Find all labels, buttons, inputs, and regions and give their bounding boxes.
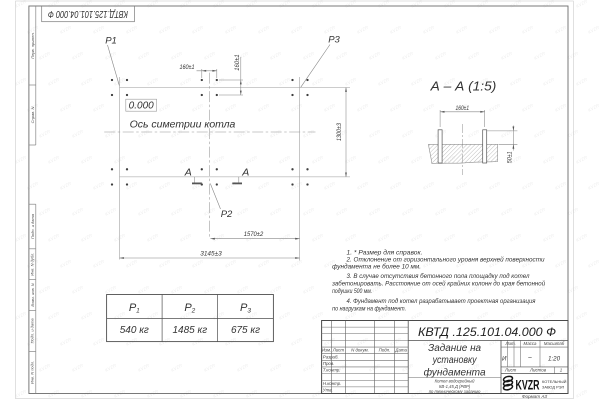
svg-text:KVZR: KVZR	[59, 258, 73, 268]
svg-text:А – А (1:5): А – А (1:5)	[430, 79, 497, 94]
svg-text:KVZR: KVZR	[191, 258, 205, 268]
svg-text:Т.контр.: Т.контр.	[323, 368, 341, 373]
svg-text:KVZR: KVZR	[575, 310, 589, 320]
svg-text:3. В случае отсутствия бет: 3. В случае отсутствия бетонного пола пл…	[347, 273, 531, 280]
svg-text:KVZR: KVZR	[302, 50, 316, 60]
svg-text:KVZR: KVZR	[170, 50, 184, 60]
svg-text:KVZR: KVZR	[302, 284, 316, 294]
svg-text:KVZR: KVZR	[476, 232, 490, 242]
svg-text:KVZR: KVZR	[38, 284, 52, 294]
svg-text:KVZR: KVZR	[377, 232, 391, 242]
svg-text:KVZR: KVZR	[92, 24, 106, 34]
svg-text:KVZR: KVZR	[575, 0, 589, 9]
svg-text:KVZR: KVZR	[191, 102, 205, 112]
svg-text:KVZR: KVZR	[38, 362, 52, 372]
svg-text:KVZR: KVZR	[212, 76, 226, 86]
svg-text:KVZR: KVZR	[14, 0, 28, 9]
svg-text:Инв. N подл.: Инв. N подл.	[30, 361, 35, 384]
svg-text:Перв. примен.: Перв. примен.	[30, 32, 35, 59]
svg-text:KVZR: KVZR	[401, 50, 415, 60]
svg-text:Листов: Листов	[529, 368, 547, 373]
svg-text:KVZR: KVZR	[311, 0, 325, 9]
svg-text:Справ. N: Справ. N	[30, 107, 35, 124]
svg-text:KVZR: KVZR	[290, 336, 304, 346]
svg-text:KVZR: KVZR	[368, 50, 382, 60]
svg-text:KVZR: KVZR	[587, 258, 600, 268]
svg-text:KVZR: KVZR	[278, 0, 292, 9]
svg-text:KVZR: KVZR	[533, 50, 547, 60]
svg-text:675 кг: 675 кг	[231, 325, 260, 336]
svg-text:KVZR: KVZR	[533, 128, 547, 138]
svg-text:KVZR: KVZR	[401, 206, 415, 216]
svg-text:KVZR: KVZR	[158, 24, 172, 34]
svg-text:KVZR: KVZR	[113, 0, 127, 9]
svg-text:KVZR: KVZR	[257, 258, 271, 268]
svg-text:KVZR: KVZR	[422, 24, 436, 34]
svg-text:KVZR: KVZR	[104, 50, 118, 60]
svg-text:KVZR: KVZR	[92, 258, 106, 268]
svg-text:KVZR: KVZR	[377, 76, 391, 86]
svg-text:KVZR: KVZR	[104, 206, 118, 216]
svg-text:KVZR: KVZR	[26, 180, 40, 190]
svg-text:KVZR: KVZR	[377, 0, 391, 9]
svg-text:KVZR: KVZR	[542, 232, 556, 242]
svg-text:КВТД .125.101.04.000 Ф: КВТД .125.101.04.000 Ф	[418, 325, 556, 339]
svg-text:0.000: 0.000	[129, 101, 154, 112]
svg-text:KVZR: KVZR	[47, 76, 61, 86]
svg-text:KVZR: KVZR	[476, 0, 490, 9]
svg-text:P1: P1	[105, 36, 117, 47]
svg-text:KVZR: KVZR	[146, 154, 160, 164]
svg-text:KVZR: KVZR	[509, 76, 523, 86]
svg-text:160±1: 160±1	[456, 105, 470, 112]
svg-text:KVZR: KVZR	[59, 102, 73, 112]
svg-text:KVZR: KVZR	[509, 232, 523, 242]
svg-text:KVZR: KVZR	[125, 180, 139, 190]
svg-text:KVZR: KVZR	[47, 0, 61, 9]
svg-text:KVZR: KVZR	[377, 154, 391, 164]
svg-text:KVZR: KVZR	[203, 362, 217, 372]
svg-text:KVZR: KVZR	[38, 128, 52, 138]
svg-text:KVZR: KVZR	[311, 232, 325, 242]
svg-text:KVZR: KVZR	[158, 180, 172, 190]
svg-text:KVZR: KVZR	[521, 102, 535, 112]
svg-text:KVZR: KVZR	[146, 310, 160, 320]
svg-text:–: –	[527, 355, 532, 362]
svg-text:KVZR: KVZR	[554, 180, 568, 190]
svg-text:KVZR: KVZR	[278, 154, 292, 164]
svg-text:Подп. и дата: Подп. и дата	[30, 213, 35, 239]
svg-text:KVZR: KVZR	[59, 336, 73, 346]
svg-text:KVZR: KVZR	[389, 336, 403, 346]
svg-text:KVZR: KVZR	[14, 76, 28, 86]
svg-text:KVZR: KVZR	[542, 0, 556, 9]
svg-text:KVZR: KVZR	[236, 362, 250, 372]
svg-text:Взам. инв. N: Взам. инв. N	[30, 283, 35, 306]
svg-text:KVZR: KVZR	[500, 50, 514, 60]
svg-text:KVZR: KVZR	[488, 24, 502, 34]
svg-text:KVZR: KVZR	[104, 128, 118, 138]
svg-text:Утв.: Утв.	[323, 388, 333, 393]
svg-text:KVZR: KVZR	[575, 232, 589, 242]
svg-text:4. Фундамент под котел раз: 4. Фундамент под котел разрабатывает про…	[347, 298, 537, 305]
svg-text:1300±3: 1300±3	[336, 123, 343, 141]
svg-text:ЗАВОД РЭП: ЗАВОД РЭП	[542, 384, 564, 389]
svg-text:KVZR: KVZR	[335, 206, 349, 216]
svg-text:по техническому заданию: по техническому заданию	[429, 389, 482, 394]
svg-text:KVZR: KVZR	[14, 310, 28, 320]
svg-text:KVZR: KVZR	[488, 102, 502, 112]
svg-text:KVZR: KVZR	[137, 206, 151, 216]
svg-text:KVZR: KVZR	[137, 50, 151, 60]
svg-text:KVZR: KVZR	[245, 154, 259, 164]
svg-text:P1: P1	[129, 302, 140, 315]
svg-text:KVZR: KVZR	[434, 206, 448, 216]
svg-text:KVZR: KVZR	[368, 206, 382, 216]
svg-text:KVZR: KVZR	[488, 180, 502, 190]
svg-text:KVZR: KVZR	[323, 102, 337, 112]
svg-text:KVZR: KVZR	[257, 102, 271, 112]
svg-text:KVZR: KVZR	[71, 362, 85, 372]
svg-text:Изм.: Изм.	[322, 348, 331, 353]
svg-text:подушки 500 мм.: подушки 500 мм.	[332, 288, 372, 295]
svg-text:KVZR: KVZR	[467, 128, 481, 138]
svg-text:Дата: Дата	[394, 348, 407, 353]
svg-text:KVZR: KVZR	[47, 310, 61, 320]
svg-text:KVZR: KVZR	[92, 336, 106, 346]
svg-text:KVZR: KVZR	[113, 232, 127, 242]
svg-text:забетонировать. Расстояние о: забетонировать. Расстояние от осей крайн…	[331, 280, 546, 287]
svg-text:KVZR: KVZR	[455, 180, 469, 190]
svg-text:KVZR: KVZR	[290, 180, 304, 190]
svg-text:KVZR: KVZR	[170, 206, 184, 216]
svg-text:160±1: 160±1	[234, 54, 241, 71]
svg-text:KVZR: KVZR	[542, 76, 556, 86]
svg-text:1485 кг: 1485 кг	[172, 325, 207, 336]
svg-text:KVZR: KVZR	[410, 76, 424, 86]
svg-text:KVZR: KVZR	[191, 180, 205, 190]
svg-text:KVZR: KVZR	[257, 24, 271, 34]
svg-text:KVZR: KVZR	[269, 362, 283, 372]
svg-text:Задание на: Задание на	[428, 343, 481, 354]
svg-text:KVZR: KVZR	[278, 232, 292, 242]
svg-text:KVZR: KVZR	[368, 362, 382, 372]
svg-text:KVZR: KVZR	[554, 258, 568, 268]
svg-text:KVZR: KVZR	[92, 102, 106, 112]
svg-text:KVZR: KVZR	[587, 24, 600, 34]
svg-text:KVZR: KVZR	[389, 102, 403, 112]
svg-text:P2: P2	[221, 209, 233, 220]
svg-text:KVZR: KVZR	[422, 102, 436, 112]
svg-text:KVZR: KVZR	[344, 76, 358, 86]
svg-text:Инв. N дубл.: Инв. N дубл.	[30, 253, 35, 276]
svg-text:KVZR: KVZR	[236, 284, 250, 294]
svg-text:KVZR: KVZR	[14, 154, 28, 164]
svg-text:KVZR: KVZR	[554, 102, 568, 112]
svg-text:KVZR: KVZR	[146, 0, 160, 9]
svg-text:KVZR: KVZR	[323, 336, 337, 346]
svg-text:KVZR: KVZR	[104, 284, 118, 294]
svg-text:KVZR: KVZR	[224, 180, 238, 190]
svg-text:KVZR: KVZR	[443, 232, 457, 242]
svg-text:KVZR: KVZR	[455, 24, 469, 34]
svg-text:KVZR: KVZR	[290, 258, 304, 268]
svg-text:KVZR: KVZR	[434, 50, 448, 60]
svg-text:KVZR: KVZR	[158, 258, 172, 268]
svg-text:KVZR: KVZR	[14, 232, 28, 242]
svg-text:KVZR: KVZR	[533, 206, 547, 216]
svg-text:KVZR: KVZR	[47, 232, 61, 242]
svg-text:540 кг: 540 кг	[120, 325, 149, 336]
svg-text:KVZR: KVZR	[521, 180, 535, 190]
svg-text:KVZR: KVZR	[344, 232, 358, 242]
svg-text:KVZR: KVZR	[212, 232, 226, 242]
svg-text:KVZR: KVZR	[368, 128, 382, 138]
svg-text:KVZR: KVZR	[587, 336, 600, 346]
svg-text:KVZR: KVZR	[467, 206, 481, 216]
svg-text:KVZR: KVZR	[356, 180, 370, 190]
svg-text:KVZR: KVZR	[269, 284, 283, 294]
svg-text:KVZR: KVZR	[80, 232, 94, 242]
svg-text:KVZR: KVZR	[224, 258, 238, 268]
svg-text:И: И	[502, 355, 507, 362]
svg-text:KVZR: KVZR	[71, 284, 85, 294]
svg-text:P2: P2	[184, 302, 195, 315]
svg-text:KVZR: KVZR	[146, 232, 160, 242]
svg-text:KVZR: KVZR	[467, 50, 481, 60]
svg-text:KVZR: KVZR	[587, 180, 600, 190]
svg-text:KVZR: KVZR	[500, 128, 514, 138]
svg-text:KVZR: KVZR	[575, 154, 589, 164]
svg-text:1:20: 1:20	[548, 355, 561, 362]
svg-text:KVZR: KVZR	[170, 284, 184, 294]
svg-text:KVZR: KVZR	[179, 232, 193, 242]
svg-text:KVZR: KVZR	[290, 24, 304, 34]
svg-text:KVZR: KVZR	[71, 206, 85, 216]
svg-text:KVZR: KVZR	[542, 154, 556, 164]
svg-text:KVZR: KVZR	[125, 24, 139, 34]
svg-text:KVZR: KVZR	[71, 50, 85, 60]
svg-text:KVZR: KVZR	[269, 50, 283, 60]
svg-text:KVZR: KVZR	[278, 310, 292, 320]
svg-text:KVZR: KVZR	[587, 102, 600, 112]
svg-text:по нагрузкам на фундамент.: по нагрузкам на фундамент.	[332, 305, 406, 312]
svg-text:KVZR: KVZR	[311, 310, 325, 320]
svg-text:KVZR: KVZR	[389, 24, 403, 34]
svg-text:KVZR: KVZR	[38, 50, 52, 60]
svg-text:KVZR: KVZR	[269, 128, 283, 138]
svg-text:KVZR: KVZR	[401, 128, 415, 138]
svg-text:KVZR: KVZR	[80, 76, 94, 86]
svg-text:KVZR: KVZR	[236, 206, 250, 216]
svg-text:KVZR: KVZR	[179, 0, 193, 9]
svg-text:2. Отклонение от горизонтал: 2. Отклонение от горизонтального уровня …	[345, 256, 545, 263]
svg-text:P3: P3	[240, 302, 251, 315]
svg-text:KVZR: KVZR	[137, 362, 151, 372]
svg-text:KVZR: KVZR	[356, 102, 370, 112]
svg-text:KVZR: KVZR	[344, 0, 358, 9]
svg-text:Пров.: Пров.	[323, 361, 335, 366]
svg-text:KVZR: KVZR	[224, 102, 238, 112]
svg-text:KVZR: KVZR	[203, 284, 217, 294]
svg-text:KVZR: KVZR	[290, 102, 304, 112]
svg-text:KVZR: KVZR	[104, 362, 118, 372]
svg-text:KVZR: KVZR	[179, 154, 193, 164]
svg-text:KVZR: KVZR	[476, 310, 490, 320]
svg-text:KVZR: KVZR	[509, 0, 523, 9]
svg-text:KVZR: KVZR	[191, 24, 205, 34]
svg-text:1570±2: 1570±2	[244, 231, 264, 238]
svg-text:KVZR: KVZR	[335, 50, 349, 60]
svg-text:KVZR: KVZR	[389, 180, 403, 190]
svg-text:KVZR: KVZR	[80, 154, 94, 164]
svg-text:KVZR: KVZR	[509, 310, 523, 320]
svg-text:KVZR: KVZR	[356, 336, 370, 346]
svg-text:KVZR: KVZR	[170, 362, 184, 372]
svg-text:KVZR: KVZR	[422, 180, 436, 190]
svg-text:160±1: 160±1	[180, 64, 195, 71]
svg-text:Масштаб: Масштаб	[544, 341, 565, 346]
svg-text:KVZR: KVZR	[323, 180, 337, 190]
svg-text:KVZR: KVZR	[179, 76, 193, 86]
svg-text:KVZR: KVZR	[302, 128, 316, 138]
svg-text:KVZR: KVZR	[311, 76, 325, 86]
svg-text:KVZR: KVZR	[443, 310, 457, 320]
svg-text:KVZR: KVZR	[47, 154, 61, 164]
svg-text:KVZR: KVZR	[113, 76, 127, 86]
svg-text:установку: установку	[432, 355, 478, 366]
svg-text:Подп.: Подп.	[379, 348, 391, 353]
svg-text:KVZR: KVZR	[245, 76, 259, 86]
svg-text:KVZR: KVZR	[92, 180, 106, 190]
svg-text:А: А	[184, 167, 192, 179]
svg-text:P3: P3	[328, 35, 340, 46]
svg-text:KVZR: KVZR	[356, 24, 370, 34]
svg-text:KVZR: KVZR	[554, 24, 568, 34]
svg-text:Ось симетрии котла: Ось симетрии котла	[130, 120, 236, 131]
svg-text:KVZR: KVZR	[113, 310, 127, 320]
svg-text:KVZR: KVZR	[302, 206, 316, 216]
svg-text:KVZR: KVZR	[443, 0, 457, 9]
svg-text:Разраб.: Разраб.	[323, 354, 339, 359]
svg-text:KVZR: KVZR	[212, 0, 226, 9]
svg-text:фундамента: фундамента	[424, 367, 486, 379]
svg-text:Лист: Лист	[504, 368, 517, 373]
svg-text:KVZR: KVZR	[113, 154, 127, 164]
svg-text:Формат А3: Формат А3	[522, 394, 548, 399]
svg-text:KVZR: KVZR	[575, 76, 589, 86]
svg-text:KVZR: KVZR	[212, 154, 226, 164]
svg-text:KVZR: KVZR	[14, 388, 28, 398]
svg-text:KVZR: KVZR	[542, 310, 556, 320]
svg-text:Н.контр.: Н.контр.	[323, 381, 342, 386]
svg-text:KVZR: KVZR	[269, 206, 283, 216]
svg-text:Масса: Масса	[524, 341, 538, 346]
svg-text:KVZR: KVZR	[236, 128, 250, 138]
svg-text:КВТД.125.101.04.000 Ф: КВТД.125.101.04.000 Ф	[48, 8, 128, 19]
svg-text:KVZR: KVZR	[278, 76, 292, 86]
svg-text:KVZR: KVZR	[311, 154, 325, 164]
svg-text:KVZR: KVZR	[500, 206, 514, 216]
svg-text:KVZR: KVZR	[203, 50, 217, 60]
svg-text:KVZR: KVZR	[80, 0, 94, 9]
svg-text:KVZR: KVZR	[38, 206, 52, 216]
svg-text:50±1: 50±1	[506, 151, 513, 163]
svg-text:KVZR: KVZR	[146, 76, 160, 86]
svg-text:KVZR: KVZR	[257, 180, 271, 190]
svg-text:KVZR: KVZR	[212, 310, 226, 320]
svg-text:KVZR: KVZR	[575, 388, 589, 398]
svg-text:KVZR: KVZR	[516, 378, 540, 393]
svg-text:KVZR: KVZR	[158, 102, 172, 112]
svg-text:Подп. и дата: Подп. и дата	[30, 318, 35, 344]
svg-text:KVZR: KVZR	[410, 0, 424, 9]
svg-text:KVZR: KVZR	[323, 24, 337, 34]
svg-text:KVZR: KVZR	[521, 24, 535, 34]
svg-text:KVZR: KVZR	[71, 128, 85, 138]
svg-text:Лит.: Лит.	[505, 341, 516, 346]
svg-text:KVZR: KVZR	[59, 180, 73, 190]
svg-text:KVZR: KVZR	[224, 24, 238, 34]
svg-text:фундамента не более 10 мм.: фундамента не более 10 мм.	[332, 264, 421, 271]
svg-text:3145±3: 3145±3	[200, 251, 222, 258]
svg-text:KVZR: KVZR	[410, 232, 424, 242]
svg-text:KVZR: KVZR	[302, 362, 316, 372]
svg-text:KVZR: KVZR	[245, 0, 259, 9]
svg-text:1: 1	[560, 368, 563, 373]
svg-text:KVZR: KVZR	[80, 310, 94, 320]
svg-text:Лист: Лист	[332, 348, 345, 353]
svg-text:KVZR: KVZR	[137, 284, 151, 294]
svg-text:KVZR: KVZR	[410, 154, 424, 164]
svg-text:KVZR: KVZR	[125, 258, 139, 268]
svg-text:А: А	[241, 167, 249, 179]
svg-text:KVZR: KVZR	[410, 310, 424, 320]
svg-text:KVZR: KVZR	[59, 24, 73, 34]
svg-text:N докум.: N докум.	[351, 348, 369, 353]
